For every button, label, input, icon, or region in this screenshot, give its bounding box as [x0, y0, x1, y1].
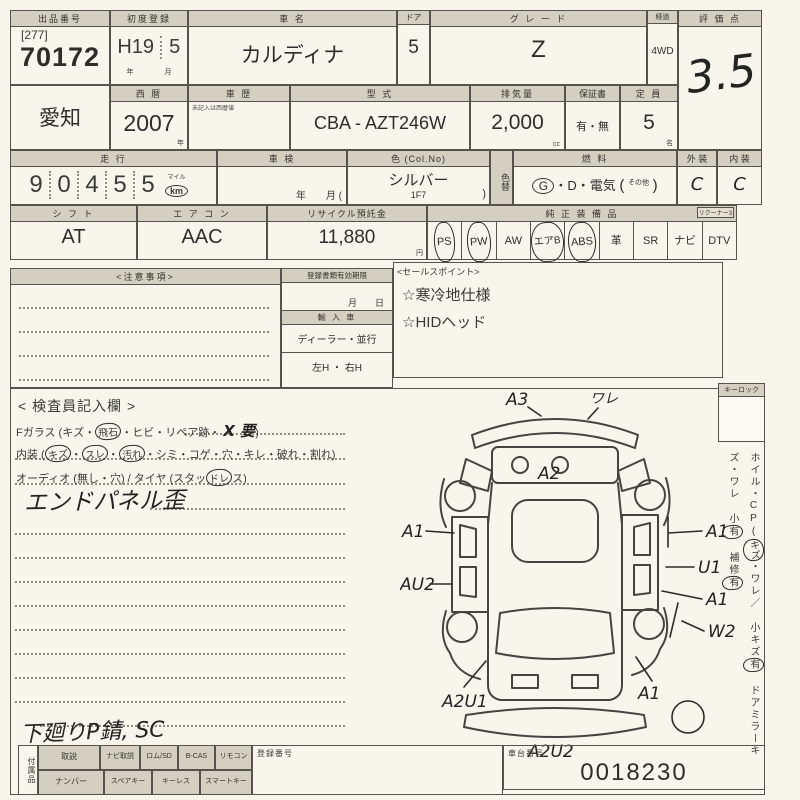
- drive-label: 経過: [648, 11, 677, 24]
- interior-text: 内装 (: [16, 449, 45, 461]
- mileage-label: 走 行: [11, 151, 216, 167]
- lot-bracket: [277]: [11, 27, 109, 42]
- accessory-manual: 取説: [38, 745, 100, 770]
- mileage-digit: 5: [105, 171, 133, 199]
- car-name: カルディナ: [189, 27, 396, 69]
- displacement-cell: 排気量 2,000 cc: [470, 85, 565, 150]
- registration-docs-box: 登録書類有効期限 月 日 輸 入 車 ディーラー・並行 左H ・ 右H: [281, 268, 393, 388]
- history-note: 未記入は西暦値: [189, 102, 289, 112]
- accessories-vertical-label: 付属品: [18, 745, 38, 795]
- shift-value: AT: [11, 222, 136, 249]
- repair-circled-yes: 有: [722, 575, 744, 590]
- chassis-number: 0018230: [504, 759, 764, 787]
- interior-circled-wear: スレ: [81, 444, 108, 463]
- interior-condition-line: 内装 (キズ・スレ・汚れ・シミ・コゲ・穴・キレ・破れ・割れ): [16, 445, 335, 462]
- glass-text: Fガラス (キズ・: [16, 427, 95, 439]
- warranty-label: 保証書: [566, 86, 619, 102]
- equip-navi: ナビ: [674, 235, 696, 247]
- recycle-fee-value: 11,880: [268, 222, 426, 249]
- interior-grade: C: [718, 167, 761, 195]
- drive-type: 4WD: [648, 24, 677, 57]
- equip-dtv: DTV: [708, 235, 730, 247]
- glass-circled-stone: 飛石: [95, 422, 122, 441]
- aircon-value: AAC: [138, 222, 266, 249]
- sales-point: ☆寒冷地仕様: [402, 282, 722, 309]
- color-code: 1F7: [348, 190, 489, 200]
- color-change-label: 色替: [500, 173, 510, 191]
- interior-circled-scratch: キズ: [44, 444, 71, 463]
- equip-sr: SR: [643, 235, 658, 247]
- auction-sheet: 出品番号 [277] 70172 初度登録 H19 5 年 月 車 名 カルディ…: [0, 0, 800, 800]
- wheel-circled-yes: 有: [743, 657, 765, 672]
- color-name: シルバー: [348, 167, 489, 190]
- equip-airbag: エアB: [530, 221, 565, 263]
- mileage-digit: 5: [133, 171, 161, 199]
- capacity-unit: 名: [666, 138, 673, 148]
- displacement-label: 排気量: [471, 86, 564, 102]
- shift-label: シ フ ト: [11, 206, 136, 222]
- door-count: 5: [398, 25, 429, 59]
- fuel-gasoline: G: [532, 178, 554, 194]
- accessories-label-text: 付属品: [27, 757, 36, 784]
- lot-number: 70172: [11, 42, 109, 73]
- mileage-km-badge: km: [165, 185, 188, 197]
- lot-cell: 出品番号 [277] 70172: [10, 10, 110, 85]
- caution-title: <注意事項>: [11, 269, 280, 285]
- equip-leather: 革: [611, 235, 622, 247]
- model-code-label: 型 式: [291, 86, 469, 102]
- car-name-label: 車 名: [189, 11, 396, 27]
- tire-circled-studless: ドレ: [206, 468, 233, 487]
- inspector-title: < 検査員記入欄 >: [18, 396, 136, 416]
- chassis-number-cell: 車台番号 0018230: [503, 745, 765, 790]
- aircon-label: エ ア コ ン: [138, 206, 266, 222]
- model-code: CBA - AZT246W: [291, 102, 469, 134]
- import-handle: 左H ・ 右H: [282, 353, 392, 374]
- lot-label: 出品番号: [11, 11, 109, 27]
- import-label: 輸 入 車: [282, 311, 392, 325]
- color-cell: 色 (Col.No) シルバー 1F7 ): [347, 150, 490, 205]
- shaken-cell: 車 検 年 月 (: [217, 150, 347, 205]
- accessory-keyless: キーレス: [152, 770, 200, 795]
- wheel-note-text: ホイル・CP(: [748, 452, 759, 539]
- grade-cell: グ レ ー ド Z: [430, 10, 647, 85]
- glass-x-required: X 要: [223, 422, 255, 440]
- glass-text: ・ヒビ・リペア跡・: [121, 427, 223, 439]
- prefecture-cell: 愛知: [10, 85, 110, 150]
- caution-box: <注意事項>: [10, 268, 281, 388]
- keylock-box: キーロック: [718, 383, 765, 442]
- sales-points-title: <セールスポイント>: [394, 263, 722, 278]
- equip-abs: ABS: [567, 221, 598, 263]
- keylock-label: キーロック: [718, 383, 765, 397]
- capacity-cell: 定 員 5 名: [620, 85, 678, 150]
- recycle-fee-label: リサイクル預託金: [268, 206, 426, 222]
- year-value: 2007: [111, 102, 187, 137]
- recycle-fee-unit: 円: [416, 248, 423, 258]
- equipment-row: PS PW AW エアB ABS 革 SR ナビ DTV: [428, 222, 736, 260]
- accessory-remote: リモコン: [215, 745, 252, 770]
- shaken-units: 年 月 (: [296, 187, 342, 202]
- color-paren: ): [482, 188, 486, 200]
- fuel-paren-open: (: [619, 177, 624, 194]
- inspector-handwritten-note: エンドパネル歪: [24, 481, 186, 518]
- accessory-navi-manual: ナビ取説: [100, 745, 140, 770]
- prefecture: 愛知: [11, 86, 109, 132]
- shift-cell: シ フ ト AT: [10, 205, 137, 260]
- sales-point: ☆HIDヘッド: [402, 309, 722, 336]
- chassis-number-label: 車台番号: [504, 746, 764, 759]
- mileage-digit: 9: [23, 171, 49, 199]
- grade-label: グ レ ー ド: [431, 11, 646, 27]
- exterior-label: 外 装: [678, 151, 716, 167]
- capacity-value: 5: [621, 102, 677, 135]
- damage-code: ワレ: [590, 391, 618, 407]
- exterior-grade-cell: 外 装 C: [677, 150, 717, 205]
- car-name-cell: 車 名 カルディナ: [188, 10, 397, 85]
- year-unit: 年: [177, 138, 184, 148]
- exterior-grade: C: [678, 167, 716, 195]
- accessory-rom-sd: ロム/SD: [140, 745, 178, 770]
- fuel-cell: 燃 料 G・D・電気 ( その他 ): [513, 150, 677, 205]
- warranty-value: 有・無: [566, 102, 619, 134]
- grade-value: Z: [431, 27, 646, 64]
- damage-code: A1: [401, 522, 424, 542]
- interior-grade-cell: 内 装 C: [717, 150, 762, 205]
- damage-code: A2: [537, 464, 560, 484]
- drive-cell: 経過 4WD: [647, 10, 678, 85]
- unit-month: 月: [165, 67, 172, 77]
- color-label: 色 (Col.No): [348, 151, 489, 167]
- door-label: ドア: [398, 11, 429, 25]
- underbody-handwritten-note: 下廻りP錆, SC: [19, 711, 165, 748]
- damage-code: U1: [698, 558, 721, 578]
- year-label: 西 暦: [111, 86, 187, 102]
- sales-points-box: <セールスポイント> ☆寒冷地仕様 ☆HIDヘッド: [393, 262, 723, 378]
- reg-docs-label: 登録書類有効期限: [282, 269, 392, 283]
- repair-note-text: 補修: [727, 552, 738, 576]
- equipment-corner-note: リクーナー3: [697, 207, 734, 218]
- reg-docs-units: 月 日: [348, 296, 384, 309]
- registration-number-label: 登録番号: [253, 746, 502, 759]
- capacity-label: 定 員: [621, 86, 677, 102]
- interior-label: 内 装: [718, 151, 761, 167]
- first-registration-cell: 初度登録 H19 5 年 月: [110, 10, 188, 85]
- history-label: 車 歴: [189, 86, 289, 102]
- accessory-bcas: B-CAS: [178, 745, 215, 770]
- accessory-number-plate: ナンバー: [38, 770, 104, 795]
- damage-code: A1: [637, 684, 660, 704]
- equipment-cell: 純 正 装 備 品 リクーナー3 PS PW AW エアB ABS 革 SR ナ…: [427, 205, 737, 260]
- damage-code: A2U1: [441, 692, 488, 712]
- interior-circled-dirt: 汚れ: [118, 444, 145, 463]
- mirror-circled-yes: 有: [722, 524, 744, 539]
- mileage-mile-label: マイル: [165, 172, 188, 181]
- glass-condition-line: Fガラス (キズ・飛石・ヒビ・リペア跡・ X 要): [16, 420, 259, 441]
- car-damage-diagram: A3 ワレ A2 A1 AU2 A2U1 A2U2 A1 U1 A1 W2 A1: [400, 385, 740, 770]
- registration-number-cell: 登録番号: [252, 745, 503, 795]
- mileage-cell: 走 行 90455 マイル km: [10, 150, 217, 205]
- interior-text: ・シミ・コゲ・穴・キレ・破れ・割れ): [145, 449, 336, 461]
- aircon-cell: エ ア コ ン AAC: [137, 205, 267, 260]
- warranty-cell: 保証書 有・無: [565, 85, 620, 150]
- displacement-value: 2,000: [471, 102, 564, 135]
- equipment-label: 純 正 装 備 品: [545, 209, 618, 219]
- equip-aw: AW: [505, 235, 522, 247]
- fuel-other-label: その他: [628, 180, 649, 187]
- score-cell: 評 価 点 3.5: [678, 10, 762, 150]
- equip-pw: PW: [466, 221, 492, 263]
- equip-ps: PS: [433, 221, 456, 262]
- accessory-smart-key: スマートキー: [200, 770, 252, 795]
- first-registration-month: 5: [162, 36, 187, 59]
- fuel-others: ・D・電気: [554, 178, 615, 193]
- history-cell: 車 歴 未記入は西暦値: [188, 85, 290, 150]
- year-cell: 西 暦 2007 年: [110, 85, 188, 150]
- glass-text: ): [255, 427, 259, 439]
- interior-text: ・: [108, 449, 119, 461]
- interior-text: ・: [71, 449, 82, 461]
- color-change-cell: 色替: [490, 150, 513, 205]
- audio-text: ス): [232, 473, 247, 485]
- damage-code: A3: [505, 390, 528, 410]
- model-code-cell: 型 式 CBA - AZT246W: [290, 85, 470, 150]
- fuel-paren-close: ): [653, 177, 658, 194]
- first-registration-label: 初度登録: [111, 11, 187, 27]
- import-type: ディーラー・並行: [282, 325, 392, 353]
- wheel-circled-scratch: キズ: [742, 538, 764, 561]
- unit-year: 年: [127, 67, 134, 77]
- door-cell: ドア 5: [397, 10, 430, 85]
- mileage-digit: 0: [49, 171, 77, 199]
- wheel-note-text: ・ワレ／ 小キズ: [748, 561, 759, 658]
- auction-score: 3.5: [675, 22, 765, 104]
- wheel-mirror-notes: ホイル・CP(キズ・ワレ／ 小キズ有 ドアミラーキズ・ワレ 小有 補修有: [722, 452, 764, 760]
- fuel-label: 燃 料: [514, 151, 676, 167]
- mileage-digit: 4: [77, 171, 105, 199]
- first-registration-era: H19: [111, 36, 162, 59]
- recycle-fee-cell: リサイクル預託金 11,880 円: [267, 205, 427, 260]
- accessory-spare-key: スペアキー: [104, 770, 152, 795]
- shaken-label: 車 検: [218, 151, 346, 167]
- damage-code: AU2: [400, 575, 435, 595]
- displacement-unit: cc: [553, 141, 560, 148]
